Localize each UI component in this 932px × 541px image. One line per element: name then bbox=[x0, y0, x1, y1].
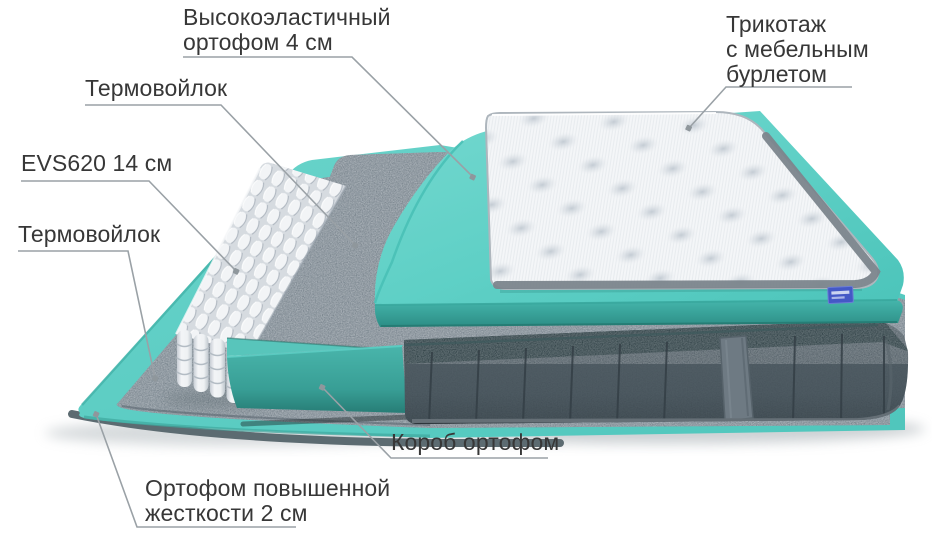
label-top-foam: Высокоэластичный ортофом 4 см bbox=[183, 5, 391, 55]
label-box-foam: Короб ортофом bbox=[391, 430, 559, 455]
label-knit-cover: Трикотаж с мебельным бурлетом bbox=[726, 12, 869, 87]
label-line: ортофом 4 см bbox=[183, 30, 391, 55]
label-line: EVS620 14 см bbox=[21, 151, 172, 176]
label-springs: EVS620 14 см bbox=[21, 151, 172, 176]
label-line: Ортофом повышенной bbox=[145, 476, 390, 501]
label-base-foam: Ортофом повышенной жесткости 2 см bbox=[145, 476, 390, 526]
label-line: Высокоэластичный bbox=[183, 5, 391, 30]
brand-tag bbox=[828, 286, 854, 303]
label-line: Трикотаж bbox=[726, 12, 869, 37]
label-line: Термовойлок bbox=[85, 76, 227, 101]
label-line: Термовойлок bbox=[18, 222, 160, 247]
mattress-layers-diagram: Высокоэластичный ортофом 4 см Трикотаж с… bbox=[0, 0, 932, 541]
label-line: бурлетом bbox=[726, 62, 869, 87]
label-felt-lower: Термовойлок bbox=[18, 222, 160, 247]
label-felt-upper: Термовойлок bbox=[85, 76, 227, 101]
label-line: жесткости 2 см bbox=[145, 501, 390, 526]
label-line: с мебельным bbox=[726, 37, 869, 62]
label-line: Короб ортофом bbox=[391, 430, 559, 455]
